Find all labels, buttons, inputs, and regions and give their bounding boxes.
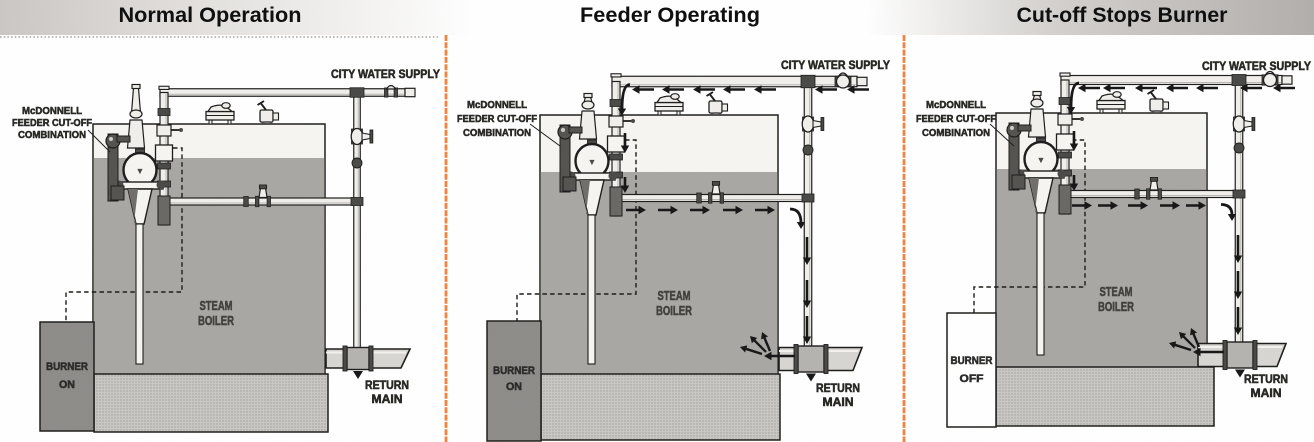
svg-text:Normal Operation: Normal Operation [119,4,302,27]
svg-text:Cut-off Stops Burner: Cut-off Stops Burner [1017,4,1228,27]
svg-text:Feeder Operating: Feeder Operating [580,4,760,27]
